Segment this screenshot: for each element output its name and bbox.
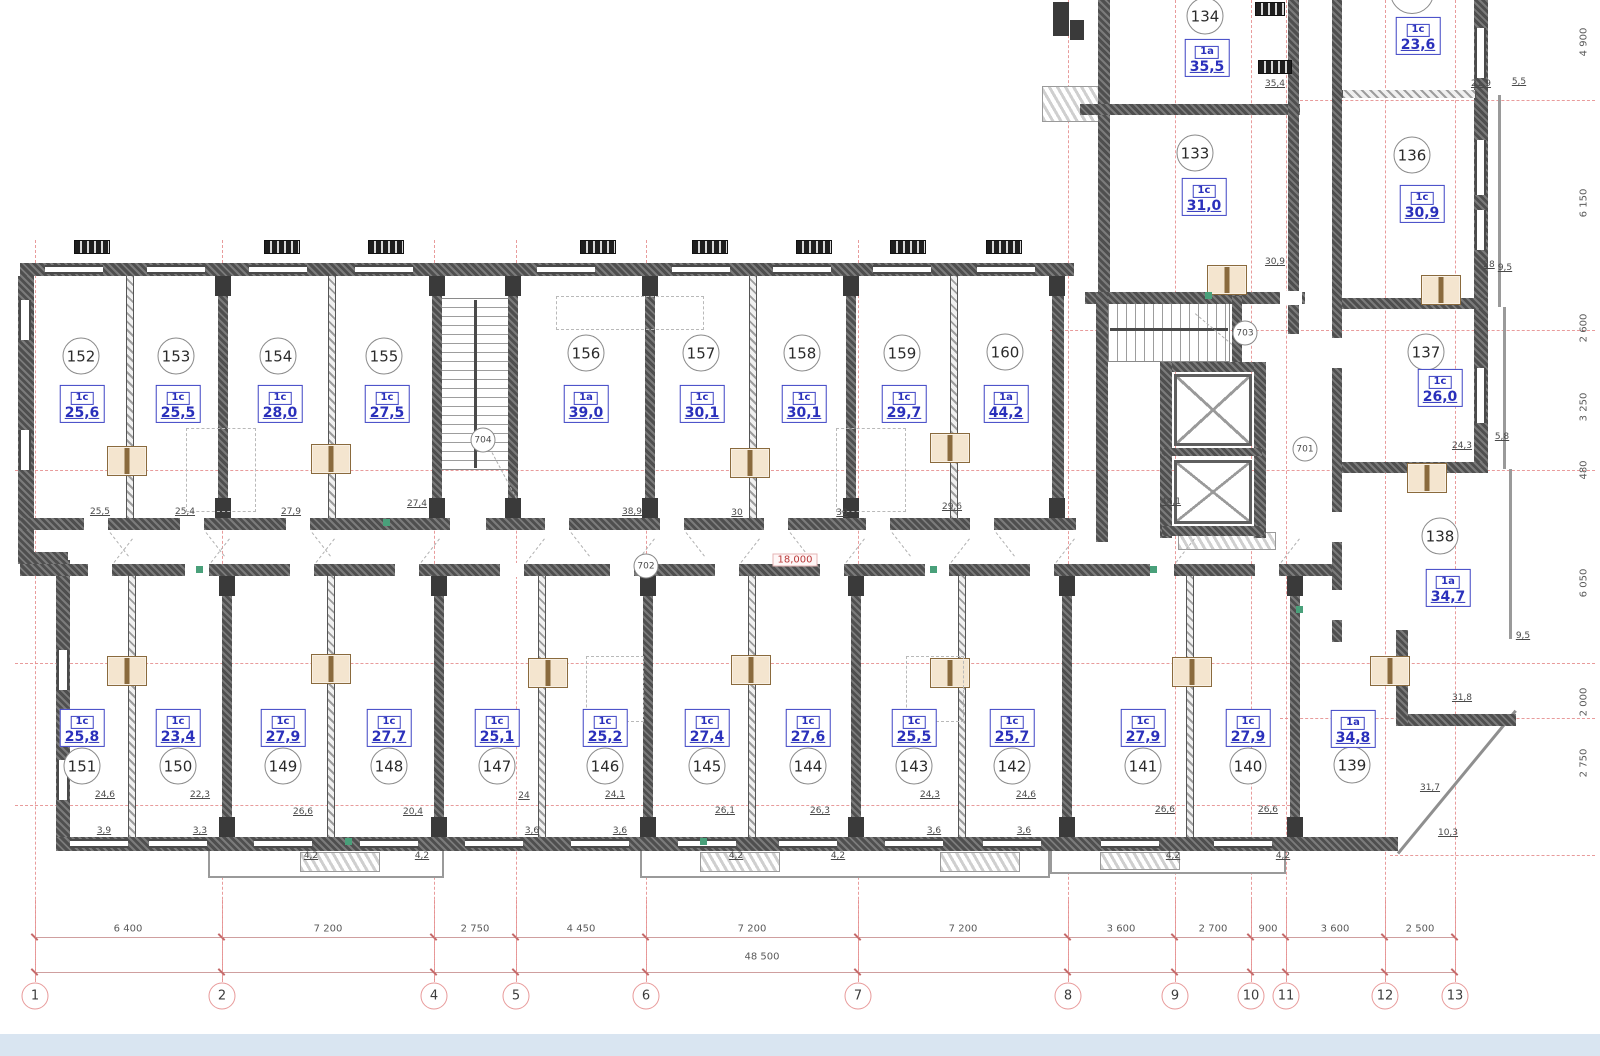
wall-segment [20, 564, 1332, 576]
window [983, 839, 1041, 848]
room-type-label: 1c [691, 392, 714, 405]
room-area-value: 34,7 [1431, 589, 1466, 604]
dimension-label: 4 450 [567, 924, 596, 935]
room-area-badge: 1c28,0 [258, 385, 303, 423]
room-number-circle: 147 [479, 748, 516, 785]
column-cap [215, 276, 231, 296]
grid-line-vertical [222, 900, 223, 982]
column-cap [642, 276, 658, 296]
dimension-label: 7 200 [949, 924, 978, 935]
dimension-label: 6 400 [114, 924, 143, 935]
grid-line-vertical [1385, 900, 1386, 982]
door-opening [545, 517, 569, 531]
dimension-label: 3,9 [97, 826, 111, 836]
door-opening [290, 563, 314, 577]
dimension-label: 26,6 [293, 807, 313, 817]
dimension-label: 2 750 [1579, 749, 1590, 778]
room-area-value: 44,2 [989, 405, 1024, 420]
room-type-label: 1c [893, 392, 916, 405]
room-number-circle [1390, 0, 1434, 14]
dimension-label: 30 [836, 508, 847, 518]
room-number-circle: 137 [1408, 334, 1445, 371]
axis-bubble: 4 [421, 983, 448, 1010]
room-type-label: 1c [1237, 716, 1260, 729]
window [537, 265, 595, 274]
door-swing [526, 539, 545, 563]
room-area-value: 27,4 [690, 729, 725, 744]
partition-segment [748, 576, 756, 837]
detail-marker-circle: 702 [634, 554, 659, 579]
door-opening [925, 563, 949, 577]
room-number-circle: 155 [366, 338, 403, 375]
dimension-label: 24,6 [1016, 790, 1036, 800]
room-number-circle: 133 [1177, 135, 1214, 172]
room-area-badge: 1c25,7 [990, 709, 1035, 747]
room-type-label: 1c [1411, 192, 1434, 205]
room-area-badge: 1c26,0 [1418, 369, 1463, 407]
partition-segment [328, 276, 336, 518]
column-cap [429, 498, 445, 518]
door-opening [764, 517, 788, 531]
axis-bubble: 6 [633, 983, 660, 1010]
door-opening [1331, 512, 1343, 542]
service-shaft [107, 656, 147, 686]
service-shaft [311, 444, 351, 474]
room-area-value: 34,8 [1336, 730, 1371, 745]
grid-line-vertical [35, 240, 36, 980]
dimension-label: 4,2 [304, 851, 318, 861]
dimension-label: 3,6 [927, 826, 941, 836]
door-marker [1205, 292, 1212, 299]
door-swing [571, 532, 590, 556]
room-area-value: 25,5 [897, 729, 932, 744]
room-area-badge: 1c30,9 [1400, 185, 1445, 223]
dimension-label: 5,5 [1512, 77, 1526, 87]
room-area-value: 27,6 [791, 729, 826, 744]
wall-segment [1162, 526, 1264, 536]
floor-plan-drawing: 1521c25,61531c25,51541c28,01551c27,51561… [0, 0, 1600, 1056]
column-cap [1287, 817, 1303, 837]
grid-line-horizontal [15, 663, 1595, 664]
room-number-circle: 141 [1125, 748, 1162, 785]
dimension-label: 20,4 [403, 807, 423, 817]
door-marker [930, 566, 937, 573]
room-number-circle: 138 [1422, 518, 1459, 555]
service-shaft [528, 658, 568, 688]
bottom-strip [0, 1034, 1600, 1056]
door-marker [1296, 606, 1303, 613]
room-number-circle: 160 [987, 334, 1024, 371]
room-number-circle: 146 [587, 748, 624, 785]
door-swing [892, 532, 911, 556]
window [873, 265, 931, 274]
door-opening [715, 563, 739, 577]
room-area-value: 25,7 [995, 729, 1030, 744]
service-shaft [731, 655, 771, 685]
dimension-label: 6 050 [1579, 569, 1590, 598]
room-area-value: 31,0 [1187, 198, 1222, 213]
door-marker [383, 519, 390, 526]
grid-line-vertical [1455, 900, 1456, 982]
room-area-value: 23,6 [1401, 37, 1436, 52]
window [45, 265, 103, 274]
door-opening [820, 563, 844, 577]
door-swing [1056, 539, 1075, 563]
stair-stringer [1110, 328, 1228, 331]
dimension-label: 26,6 [1258, 805, 1278, 815]
vent-block [1255, 2, 1285, 16]
dimension-label: 26,1 [715, 806, 735, 816]
column-cap [1049, 276, 1065, 296]
column-cap [505, 276, 521, 296]
room-type-label: 1c [1001, 716, 1024, 729]
room-area-badge: 1c27,7 [367, 709, 412, 747]
door-marker [1150, 566, 1157, 573]
door-opening [500, 563, 524, 577]
room-area-value: 25,8 [65, 729, 100, 744]
dashed-outline [836, 428, 906, 512]
dimension-label: 2 700 [1199, 924, 1228, 935]
room-type-label: 1c [167, 392, 190, 405]
axis-bubble: 2 [209, 983, 236, 1010]
wall-segment [1098, 0, 1110, 298]
room-number-circle: 134 [1187, 0, 1224, 35]
room-number-circle: 157 [683, 335, 720, 372]
room-area-value: 35,5 [1190, 59, 1225, 74]
window [149, 839, 207, 848]
dimension-label: 2 000 [1579, 688, 1590, 717]
column-cap [505, 498, 521, 518]
room-type-label: 1a [574, 392, 598, 405]
room-area-value: 25,2 [588, 729, 623, 744]
room-area-badge: 1c23,6 [1396, 17, 1441, 55]
room-number-circle: 159 [884, 335, 921, 372]
dimension-label: 10,3 [1438, 828, 1458, 838]
room-area-badge: 1a34,8 [1331, 710, 1376, 748]
wall-segment [1062, 576, 1072, 837]
window [19, 430, 31, 470]
room-type-label: 1a [994, 392, 1018, 405]
dimension-label: 7 200 [738, 924, 767, 935]
room-area-badge: 1c27,9 [261, 709, 306, 747]
room-number-circle: 150 [160, 748, 197, 785]
wall-segment [432, 276, 442, 518]
vent-block [74, 240, 110, 254]
service-shaft [930, 433, 970, 463]
dimension-label: 27,9 [281, 507, 301, 517]
door-opening [286, 517, 310, 531]
service-shaft [107, 446, 147, 476]
grid-line-vertical [434, 900, 435, 982]
room-area-badge: 1c30,1 [680, 385, 725, 423]
wall-segment [1288, 0, 1299, 334]
grid-line-vertical [1175, 900, 1176, 982]
room-number-circle: 139 [1334, 747, 1371, 784]
window [147, 265, 205, 274]
grid-line-vertical [1068, 900, 1069, 982]
column-cap [1059, 576, 1075, 596]
vent-block [986, 240, 1022, 254]
dimension-label: 26,3 [810, 806, 830, 816]
room-type-label: 1a [1341, 717, 1365, 730]
dimension-label: 3 600 [1321, 924, 1350, 935]
room-number-circle: 140 [1230, 748, 1267, 785]
room-area-value: 26,0 [1423, 389, 1458, 404]
room-area-badge: 1a35,5 [1185, 39, 1230, 77]
door-opening [866, 517, 890, 531]
column-cap [1070, 20, 1084, 40]
room-area-badge: 1c30,1 [782, 385, 827, 423]
room-number-circle: 153 [158, 338, 195, 375]
window [773, 265, 831, 274]
column-cap [429, 276, 445, 296]
room-type-label: 1c [903, 716, 926, 729]
wall-segment [1080, 104, 1300, 115]
service-shaft [730, 448, 770, 478]
dimension-label: 4,2 [831, 851, 845, 861]
room-number-circle: 152 [63, 338, 100, 375]
dimension-label: 3,3 [193, 826, 207, 836]
room-area-value: 27,5 [370, 405, 405, 420]
window [571, 839, 629, 848]
room-area-badge: 1c31,0 [1182, 178, 1227, 216]
room-area-value: 25,6 [65, 405, 100, 420]
room-number-circle: 144 [790, 748, 827, 785]
room-number-circle: 136 [1394, 137, 1431, 174]
facade-line [1498, 95, 1501, 307]
wall-segment [1160, 362, 1266, 372]
column-cap [640, 576, 656, 596]
door-opening [1030, 563, 1054, 577]
service-shaft [1370, 656, 1410, 686]
window [360, 839, 418, 848]
dimension-label: 3,6 [525, 826, 539, 836]
column-cap [843, 276, 859, 296]
wall-segment [1085, 292, 1305, 304]
door-opening [1331, 590, 1343, 620]
room-type-label: 1a [1195, 46, 1219, 59]
column-cap [1049, 498, 1065, 518]
dimension-label: 24,6 [95, 790, 115, 800]
window [254, 839, 312, 848]
dimension-label: 7 200 [314, 924, 343, 935]
dimension-label: 3,6 [613, 826, 627, 836]
room-type-label: 1c [1429, 376, 1452, 389]
window [57, 650, 69, 690]
axis-bubble: 8 [1055, 983, 1082, 1010]
window [1475, 210, 1486, 250]
door-opening [1255, 563, 1279, 577]
window [249, 265, 307, 274]
axis-bubble: 12 [1372, 983, 1399, 1010]
detail-marker-circle: 703 [1233, 321, 1258, 346]
dimension-label: 25,5 [90, 507, 110, 517]
column-cap [1059, 817, 1075, 837]
room-area-value: 27,9 [1126, 729, 1161, 744]
room-area-badge: 1c27,5 [365, 385, 410, 423]
room-area-badge: 1c25,8 [60, 709, 105, 747]
service-shaft [1421, 275, 1461, 305]
dimension-label: 28 [1483, 260, 1494, 270]
room-area-value: 27,9 [266, 729, 301, 744]
dimension-label: 44,1 [1161, 497, 1181, 507]
grid-line-horizontal [1390, 855, 1595, 856]
dimension-label: 3 250 [1579, 393, 1590, 422]
wall-segment [1332, 0, 1342, 642]
vent-block [796, 240, 832, 254]
room-type-label: 1c [594, 716, 617, 729]
dashed-outline [186, 428, 256, 512]
room-number-circle: 148 [371, 748, 408, 785]
dimension-label: 5,8 [1495, 432, 1509, 442]
grid-line-vertical [516, 900, 517, 982]
grid-line-vertical [1286, 900, 1287, 982]
window [672, 265, 730, 274]
column-cap [219, 817, 235, 837]
service-shaft [311, 654, 351, 684]
dimension-label: 31,8 [1452, 693, 1472, 703]
dimension-label: 30,9 [1265, 257, 1285, 267]
room-type-label: 1a [1436, 576, 1460, 589]
window [678, 839, 736, 848]
dimension-label: 38,9 [622, 507, 642, 517]
door-opening [84, 517, 108, 531]
wall-segment [1398, 714, 1516, 726]
grid-line-vertical [35, 900, 36, 982]
axis-bubble: 1 [22, 983, 49, 1010]
room-area-badge: 1c27,6 [786, 709, 831, 747]
door-swing [996, 532, 1015, 556]
dimension-label: 2 600 [1579, 314, 1590, 343]
room-number-circle: 156 [568, 335, 605, 372]
axis-bubble: 10 [1238, 983, 1265, 1010]
room-area-value: 30,1 [685, 405, 720, 420]
column-cap [1053, 2, 1069, 36]
window [1475, 368, 1486, 423]
dimension-label: 3 600 [1107, 924, 1136, 935]
room-number-circle: 151 [64, 748, 101, 785]
room-number-circle: 145 [689, 748, 726, 785]
room-type-label: 1c [167, 716, 190, 729]
room-area-badge: 1c27,4 [685, 709, 730, 747]
room-area-badge: 1a39,0 [564, 385, 609, 423]
window [1475, 28, 1486, 78]
grid-line-vertical [1251, 900, 1252, 982]
room-type-label: 1c [269, 392, 292, 405]
dimension-label: 480 [1579, 460, 1590, 479]
door-swing [1281, 539, 1300, 563]
dimension-label: 2 500 [1406, 924, 1435, 935]
room-area-value: 27,9 [1231, 729, 1266, 744]
door-opening [395, 563, 419, 577]
room-area-badge: 1a34,7 [1426, 569, 1471, 607]
door-marker [196, 566, 203, 573]
service-shaft [1407, 463, 1447, 493]
dimension-label: 4,2 [415, 851, 429, 861]
partition-segment [1342, 90, 1476, 98]
vent-block [1258, 60, 1292, 74]
dimension-label: 4 900 [1579, 28, 1590, 57]
wall-segment [1096, 292, 1108, 542]
column-cap [1287, 576, 1303, 596]
dimension-label: 4,2 [1166, 851, 1180, 861]
window [19, 300, 31, 340]
room-type-label: 1c [272, 716, 295, 729]
dimension-label: 24,3 [920, 790, 940, 800]
dimension-label: 9,5 [1498, 263, 1512, 273]
window [779, 839, 837, 848]
column-cap [848, 576, 864, 596]
partition-segment [1186, 576, 1194, 837]
dimension-label: 4,2 [1276, 851, 1290, 861]
dimension-label: 3,6 [1017, 826, 1031, 836]
elevator-shaft [1174, 374, 1252, 446]
wall-segment [434, 576, 444, 837]
room-area-badge: 1c25,2 [583, 709, 628, 747]
detail-marker-circle: 704 [471, 428, 496, 453]
dimension-label: 9,5 [1516, 631, 1530, 641]
door-opening [610, 563, 634, 577]
axis-bubble: 11 [1273, 983, 1300, 1010]
door-opening [1280, 291, 1302, 305]
axis-bubble: 7 [845, 983, 872, 1010]
service-shaft [1207, 265, 1247, 295]
door-swing [741, 539, 760, 563]
door-swing [846, 539, 865, 563]
room-number-circle: 154 [260, 338, 297, 375]
door-swing [421, 539, 440, 563]
door-opening [88, 563, 112, 577]
room-type-label: 1c [696, 716, 719, 729]
room-type-label: 1c [71, 392, 94, 405]
door-opening [1331, 338, 1343, 368]
detail-marker-circle: 701 [1293, 437, 1318, 462]
room-number-circle: 149 [265, 748, 302, 785]
axis-bubble: 9 [1162, 983, 1189, 1010]
wall-segment [508, 276, 518, 518]
room-area-badge: 1c25,5 [156, 385, 201, 423]
window [1214, 839, 1272, 848]
axis-bubble: 5 [503, 983, 530, 1010]
room-area-value: 25,1 [480, 729, 515, 744]
room-number-circle: 142 [994, 748, 1031, 785]
door-opening [970, 517, 994, 531]
grid-line-vertical [646, 900, 647, 982]
column-cap [642, 498, 658, 518]
elevation-mark: 18,000 [773, 554, 818, 567]
dimension-line [35, 972, 1455, 973]
dimension-label: 30 [731, 508, 742, 518]
vent-block [890, 240, 926, 254]
window [1475, 140, 1486, 195]
room-area-badge: 1c25,6 [60, 385, 105, 423]
partition-segment [128, 576, 136, 837]
door-swing [951, 539, 970, 563]
room-area-value: 25,5 [161, 405, 196, 420]
room-area-value: 29,7 [887, 405, 922, 420]
axis-bubble: 13 [1442, 983, 1469, 1010]
partition-segment [126, 276, 134, 518]
partition-segment [327, 576, 335, 837]
dimension-label: 900 [1258, 924, 1277, 935]
room-area-value: 39,0 [569, 405, 604, 420]
vent-block [692, 240, 728, 254]
wall-segment [1052, 276, 1064, 518]
door-opening [660, 517, 684, 531]
vent-block [264, 240, 300, 254]
room-type-label: 1c [1407, 24, 1430, 37]
room-type-label: 1c [486, 716, 509, 729]
